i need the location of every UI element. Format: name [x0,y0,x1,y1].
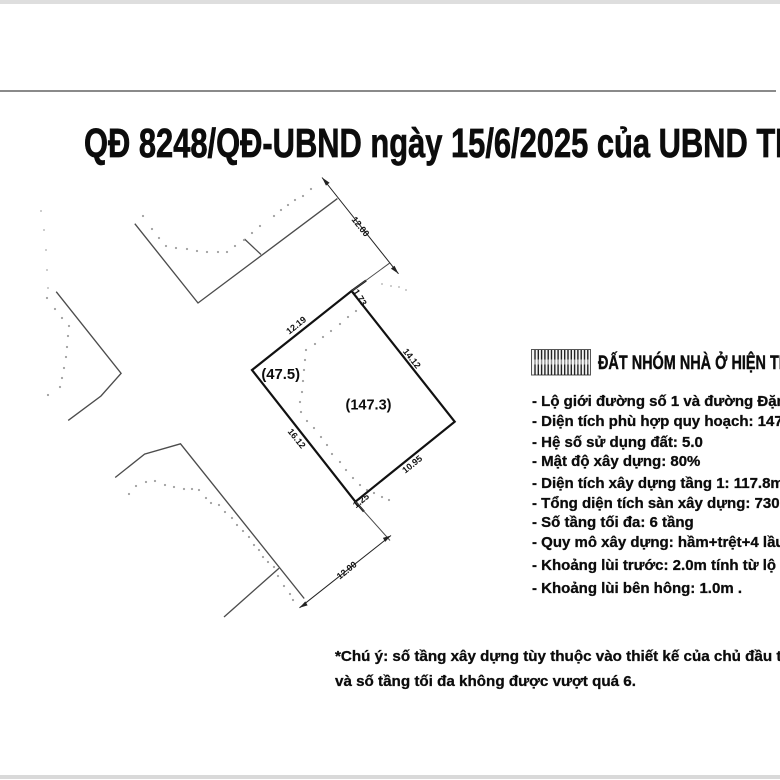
svg-text:(47.5): (47.5) [261,367,300,383]
svg-text:12.00: 12.00 [335,559,359,581]
svg-text:(147.3): (147.3) [346,398,392,414]
svg-text:16.12: 16.12 [286,427,308,451]
svg-text:12.19: 12.19 [284,314,308,336]
svg-text:1.73: 1.73 [351,287,369,307]
svg-text:10.95: 10.95 [400,453,424,475]
